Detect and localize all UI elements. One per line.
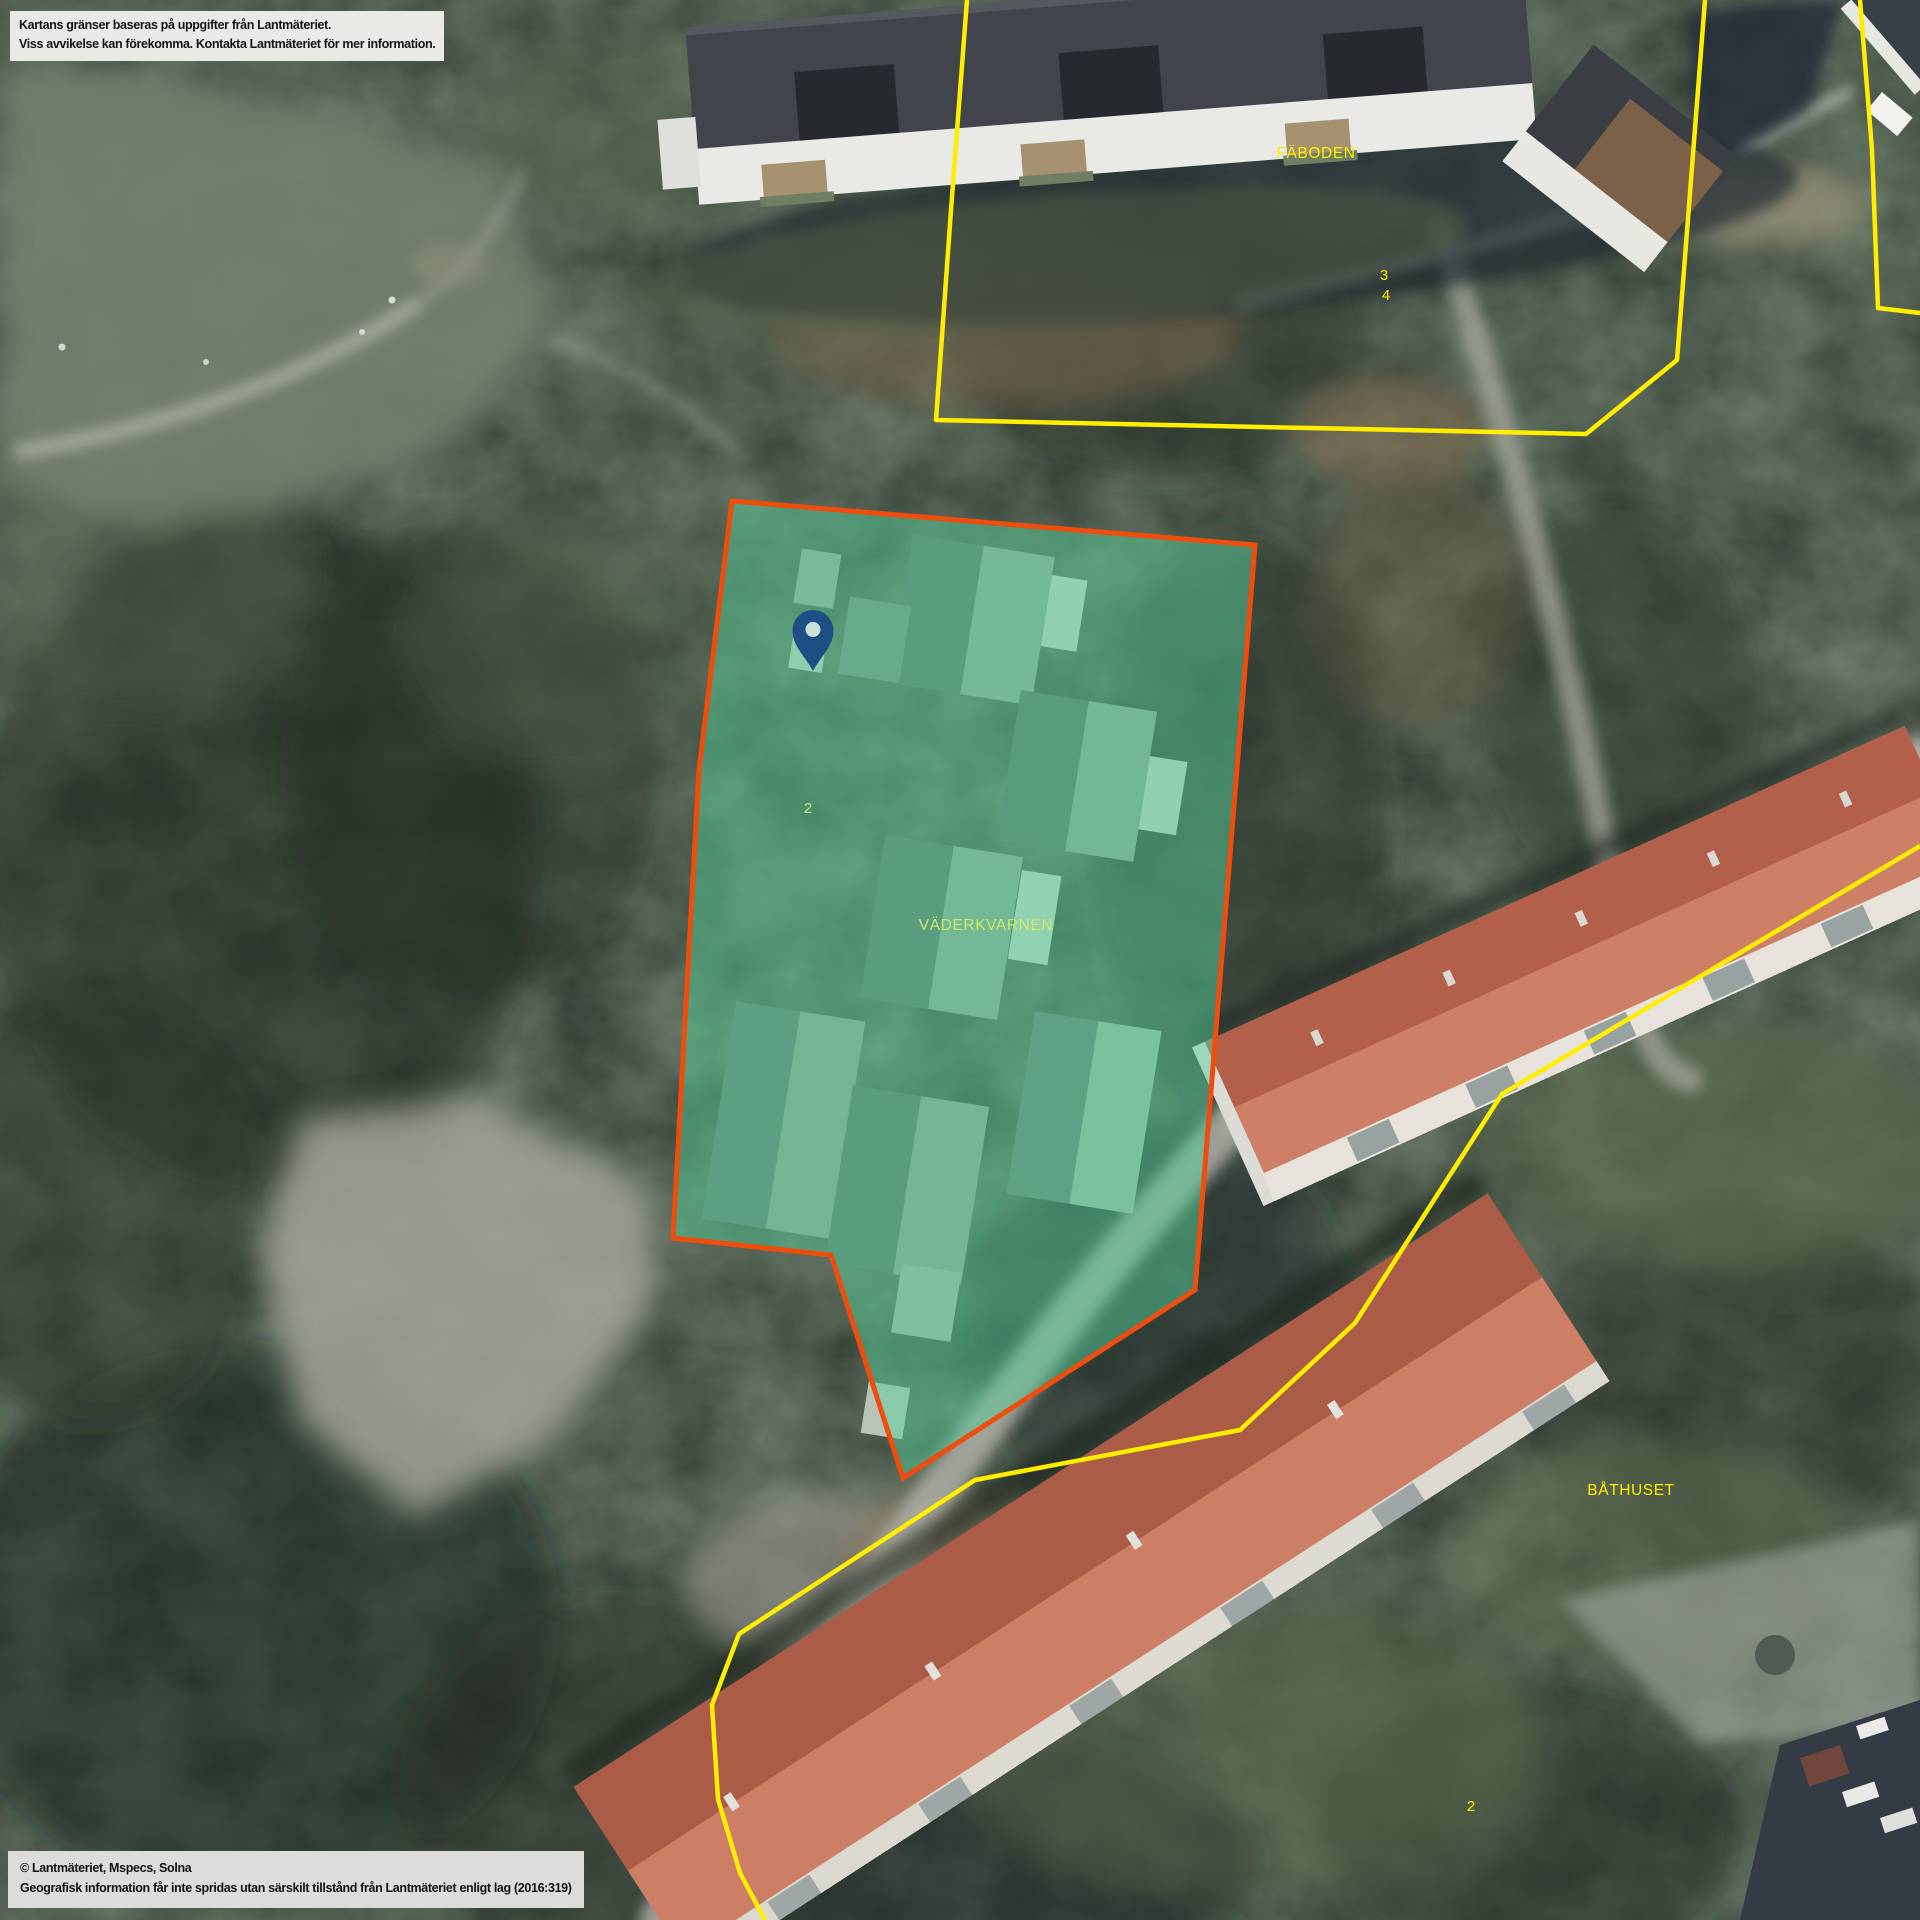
copyright-line2: Geografisk information får inte spridas …: [20, 1879, 572, 1898]
disclaimer-line1: Kartans gränser baseras på uppgifter frå…: [19, 16, 435, 35]
disclaimer-line2: Viss avvikelse kan förekomma. Kontakta L…: [19, 35, 435, 54]
copyright-line1: © Lantmäteriet, Mspecs, Solna: [20, 1859, 572, 1878]
copyright-notice: © Lantmäteriet, Mspecs, Solna Geografisk…: [8, 1851, 584, 1908]
label-vaderkvarnen-unit: 2: [804, 800, 812, 817]
map-viewport[interactable]: FÄBODEN 3 4 VÄDERKVARNEN 2 BÅTHUSET 2 Ka…: [0, 0, 1920, 1920]
label-bathuset: BÅTHUSET: [1587, 1482, 1674, 1499]
label-faboden: FÄBODEN: [1276, 145, 1355, 162]
map-disclaimer: Kartans gränser baseras på uppgifter frå…: [10, 11, 444, 61]
label-faboden-unit-3: 3: [1380, 267, 1388, 284]
label-faboden-unit-4: 4: [1382, 287, 1390, 304]
label-bathuset-unit: 2: [1467, 1798, 1475, 1815]
map-canvas[interactable]: FÄBODEN 3 4 VÄDERKVARNEN 2 BÅTHUSET 2: [0, 0, 1920, 1920]
label-vaderkvarnen: VÄDERKVARNEN: [919, 917, 1053, 934]
